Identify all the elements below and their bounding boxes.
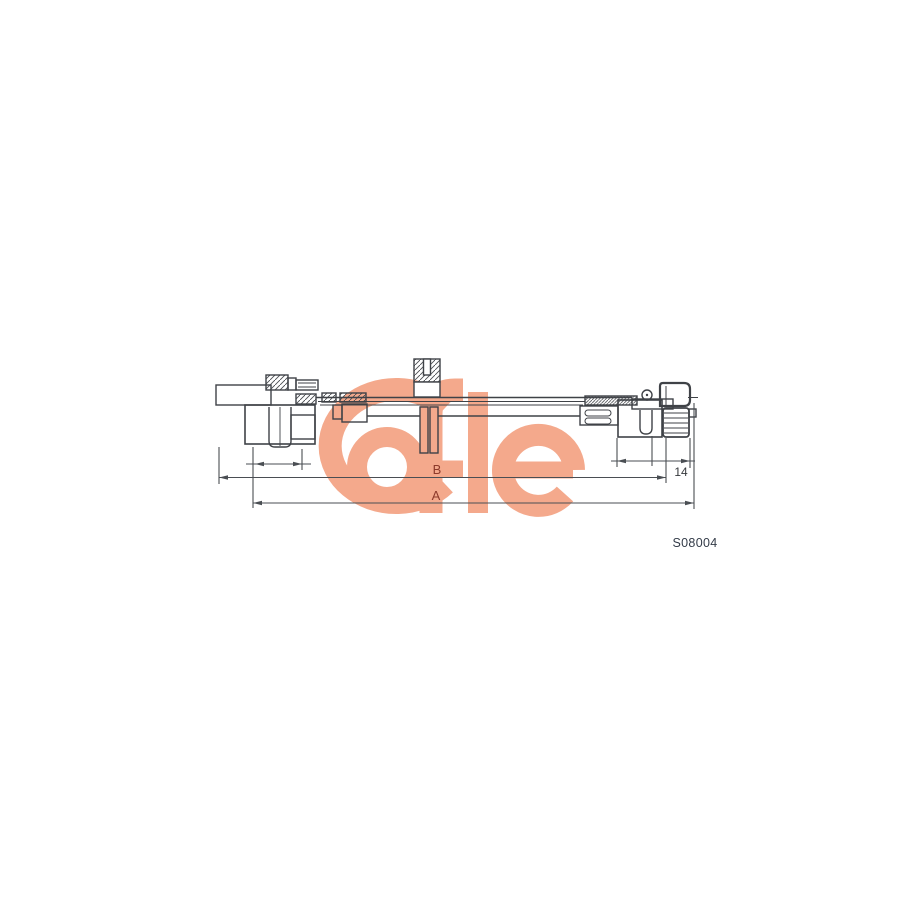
dimension-line-left-small xyxy=(246,462,311,467)
cable-drawing xyxy=(216,359,698,453)
dimension-label-14: 14 xyxy=(674,465,688,479)
dimension-line-14: 14 xyxy=(611,459,695,479)
knurled-nut xyxy=(663,408,689,437)
tongue xyxy=(640,410,652,434)
part-number: S08004 xyxy=(673,536,718,550)
technical-drawing-canvas: 14 B A S08004 xyxy=(0,0,900,900)
dimension-label-b: B xyxy=(433,462,442,477)
product-image: 14 B A S08004 xyxy=(0,0,900,900)
dimension-extension-lines xyxy=(219,403,694,509)
dimension-label-a: A xyxy=(432,488,441,503)
right-end-fitting xyxy=(580,383,696,437)
left-end-fitting xyxy=(216,375,318,447)
nut-cap xyxy=(660,383,690,406)
